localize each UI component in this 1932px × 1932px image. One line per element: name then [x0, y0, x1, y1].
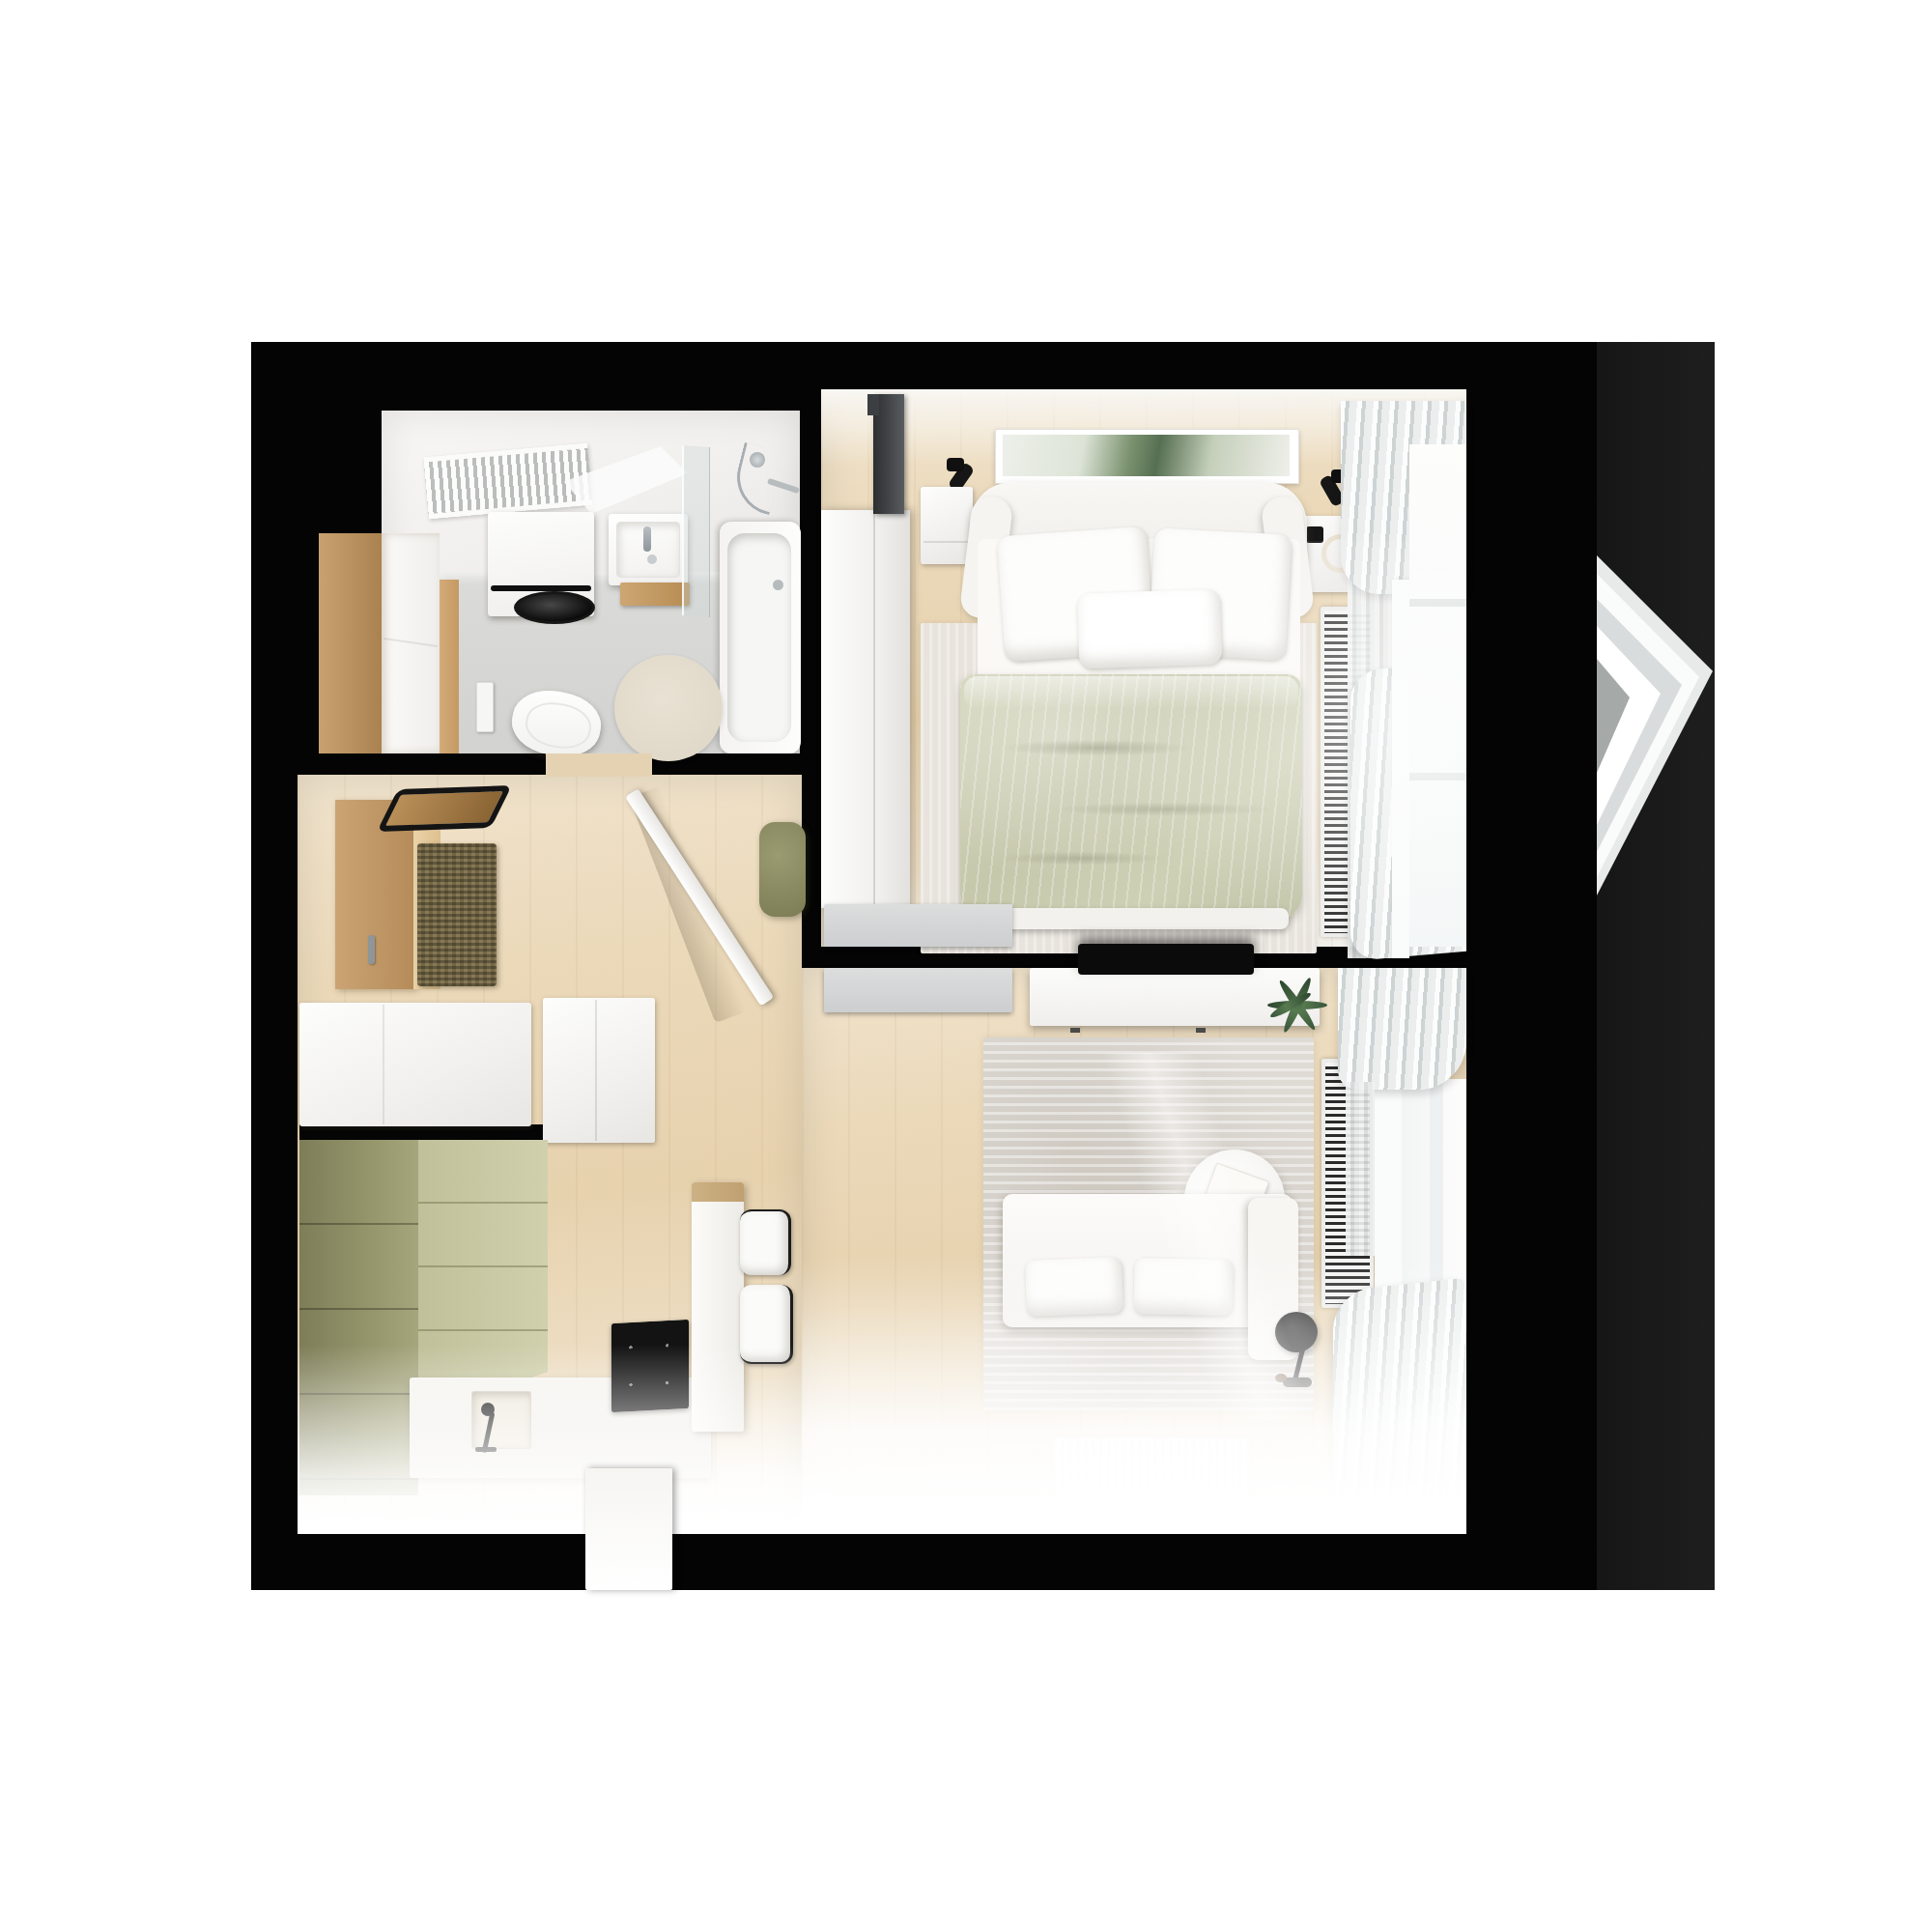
washing-machine-lid-line [491, 585, 591, 591]
hall-door-threshold [546, 753, 652, 777]
hall-pouf [759, 822, 806, 917]
hall-white-cabinet-seam [595, 1000, 597, 1141]
living-dresser [824, 968, 1012, 1012]
kitchen-hall-wall [299, 1124, 543, 1141]
coat-hook [368, 935, 375, 964]
bedroom-wardrobe [821, 510, 910, 908]
nightstand-left [921, 487, 973, 564]
nightstand-left-seam [923, 541, 970, 543]
bathroom-faucet [643, 526, 651, 552]
shower-head [750, 452, 765, 468]
bedroom-artwork-canvas [1003, 435, 1290, 476]
living-floor-wash [802, 1256, 1466, 1534]
hall-sideboard [299, 1003, 531, 1126]
sconce-left-head [947, 458, 964, 471]
living-tv [1078, 944, 1254, 975]
living-console-leg-1 [1070, 1028, 1080, 1033]
toilet-flush-plate [476, 682, 494, 732]
kitchen-peninsula-top-cap [692, 1182, 744, 1202]
hall-floor-wash [298, 1345, 802, 1534]
bathtub-drain [773, 580, 783, 590]
bedroom-tv-bracket [867, 394, 879, 415]
hall-white-cabinet [543, 998, 655, 1143]
bathroom-sink-drain [647, 554, 657, 564]
plant [1264, 978, 1331, 1034]
bathroom-round-rug [614, 655, 723, 761]
hall-sideboard-seam [383, 1005, 384, 1124]
woven-bench [417, 843, 497, 986]
bathroom-door-frame-strip [440, 580, 459, 753]
bar-stool-1 [740, 1209, 791, 1275]
bedroom-dresser [824, 904, 1012, 947]
floor-plan-scene [0, 0, 1932, 1932]
kitchen-white-cabinet-spill [585, 1468, 672, 1590]
shower-glass-screen [682, 445, 710, 617]
bathtub-inner [727, 533, 791, 742]
bedroom-wardrobe-seam [873, 512, 875, 906]
sink-wood-base [620, 582, 690, 606]
annex-strip [1597, 342, 1715, 1590]
screenshot-root: { "meta": { "title": "Apartment floor pl… [0, 0, 1932, 1932]
niche-wood-cabinet [319, 533, 382, 753]
living-console-leg-2 [1196, 1028, 1206, 1033]
bedroom-sunlight [1101, 541, 1466, 956]
washing-machine-drum [514, 591, 595, 624]
